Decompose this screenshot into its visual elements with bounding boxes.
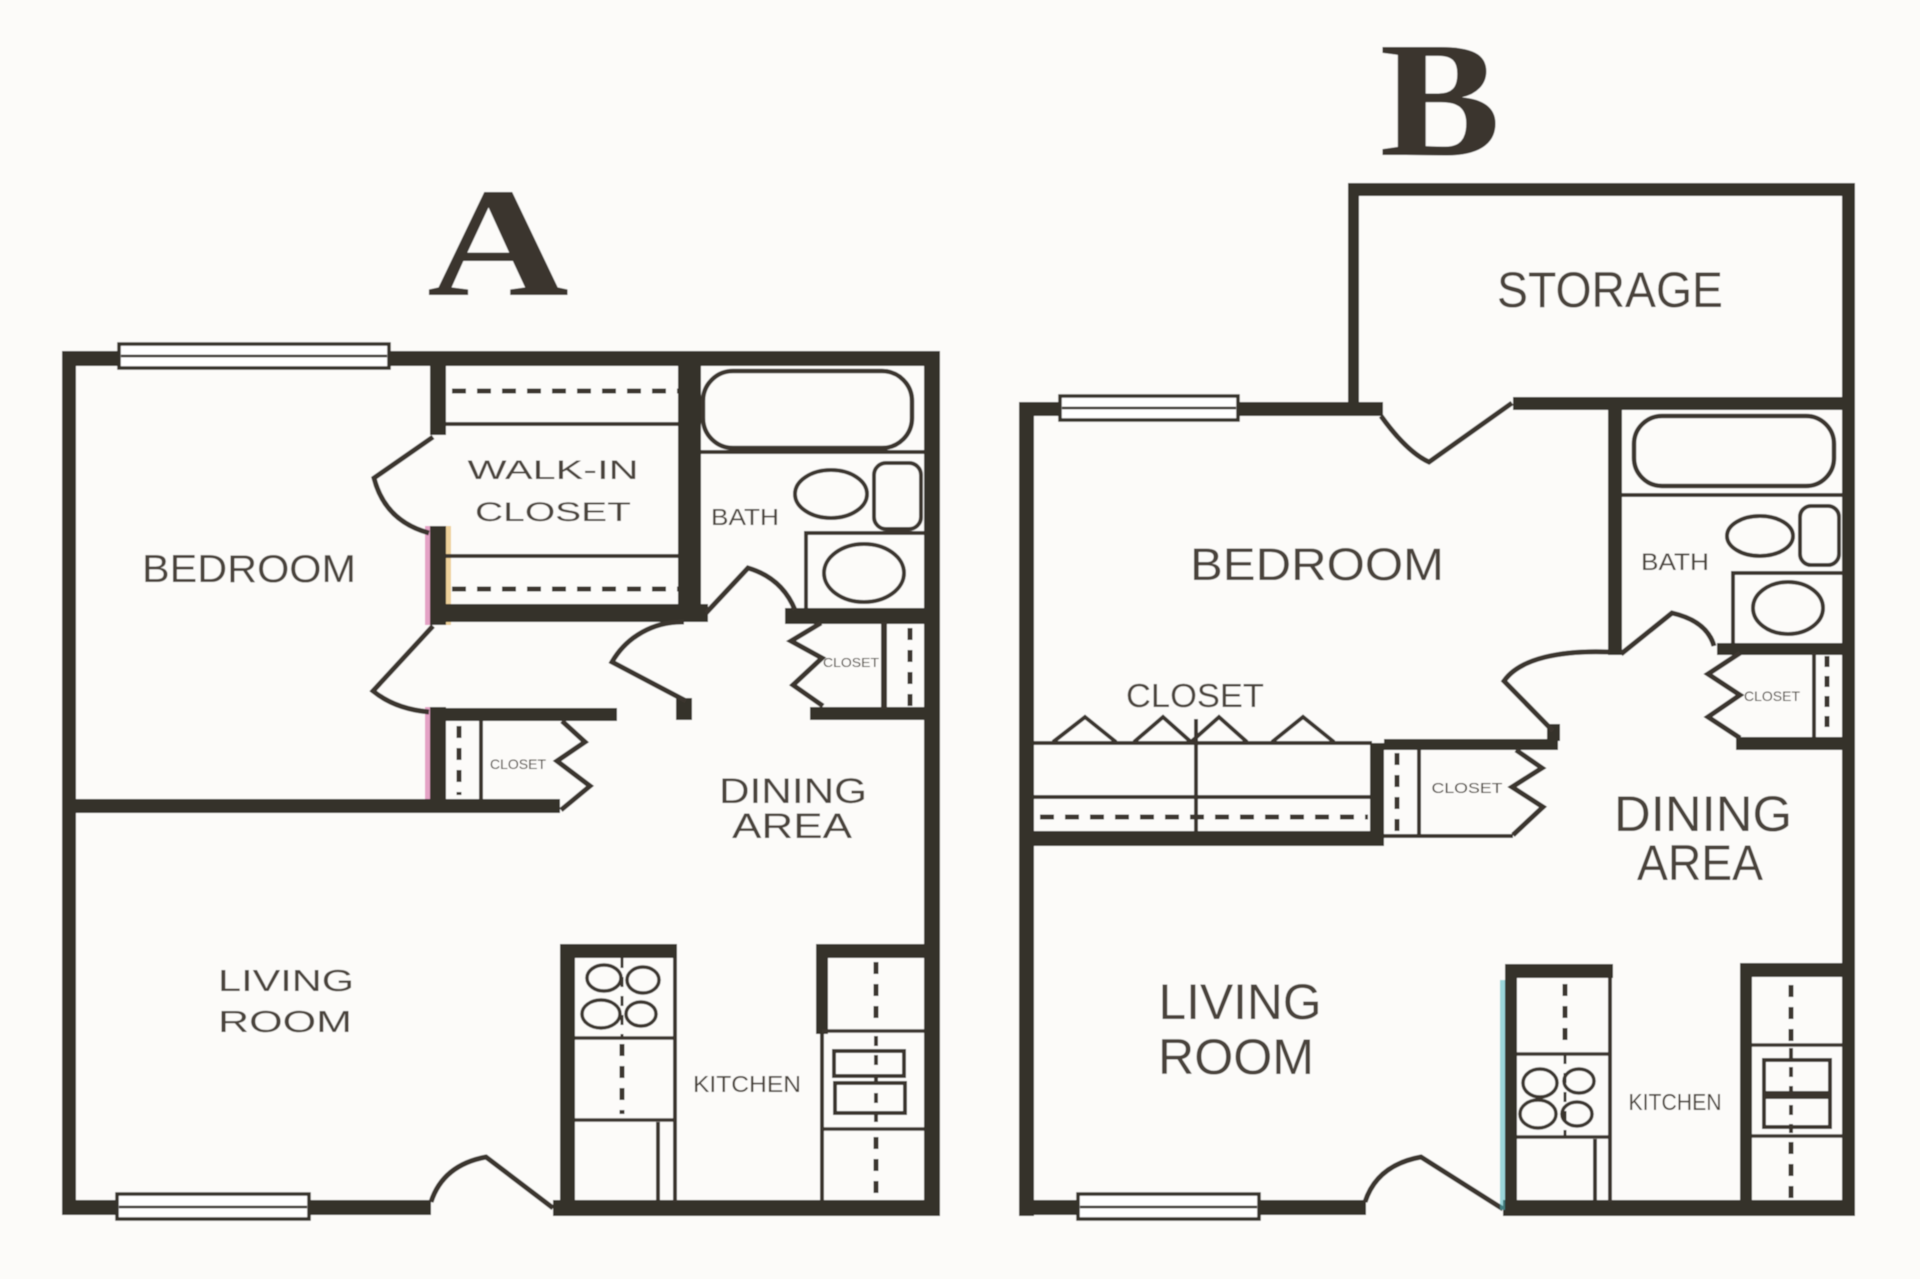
svg-text:CLOSET: CLOSET: [1744, 688, 1800, 704]
svg-text:B: B: [1379, 8, 1500, 192]
svg-text:KITCHEN: KITCHEN: [693, 1071, 801, 1097]
svg-text:A: A: [427, 157, 569, 329]
svg-text:BATH: BATH: [711, 504, 779, 530]
svg-text:CLOSET: CLOSET: [1432, 780, 1503, 797]
svg-text:CLOSET: CLOSET: [1126, 677, 1264, 714]
svg-text:CLOSET: CLOSET: [490, 756, 546, 772]
svg-text:LIVING: LIVING: [218, 963, 354, 998]
svg-text:AREA: AREA: [732, 807, 853, 846]
svg-text:ROOM: ROOM: [1158, 1029, 1314, 1085]
svg-text:CLOSET: CLOSET: [475, 497, 631, 527]
svg-text:CLOSET: CLOSET: [823, 655, 879, 670]
svg-text:LIVING: LIVING: [1159, 974, 1322, 1030]
svg-text:BATH: BATH: [1641, 549, 1709, 576]
svg-text:ROOM: ROOM: [218, 1004, 352, 1039]
svg-text:WALK-IN: WALK-IN: [468, 455, 639, 485]
svg-text:DINING: DINING: [719, 772, 867, 811]
svg-text:BEDROOM: BEDROOM: [1190, 539, 1444, 590]
svg-text:KITCHEN: KITCHEN: [1629, 1089, 1722, 1115]
svg-text:DINING: DINING: [1614, 786, 1792, 842]
svg-text:AREA: AREA: [1637, 835, 1764, 891]
svg-text:STORAGE: STORAGE: [1497, 262, 1723, 318]
svg-text:BEDROOM: BEDROOM: [142, 548, 356, 591]
